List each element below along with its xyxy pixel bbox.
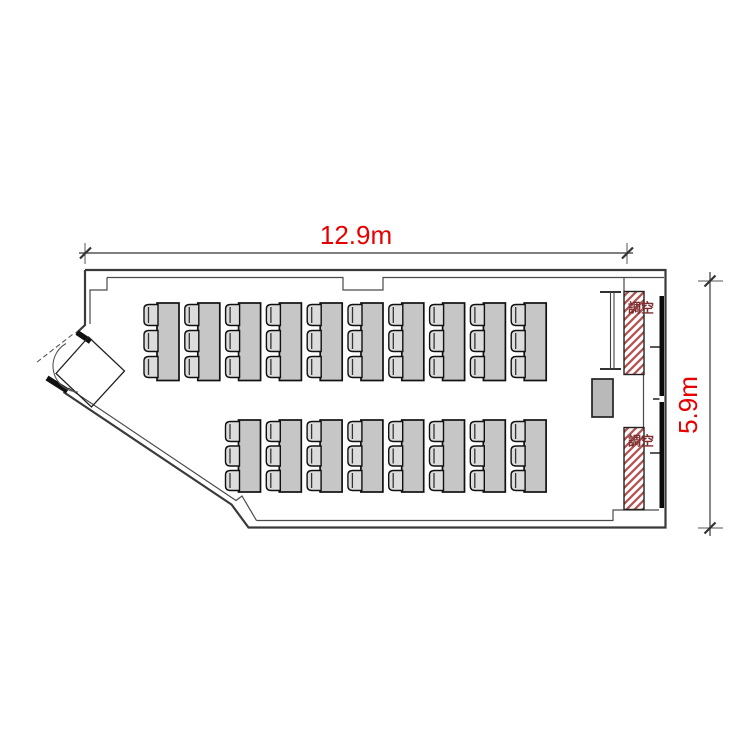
table-group	[185, 303, 220, 381]
chair	[430, 446, 444, 466]
chair	[470, 471, 484, 491]
chair	[470, 422, 484, 442]
table	[320, 420, 342, 492]
chair	[511, 422, 525, 442]
chair	[389, 471, 403, 491]
table	[524, 303, 546, 381]
projector-screen-icon	[611, 292, 615, 369]
table	[483, 303, 505, 381]
table-group	[470, 420, 505, 492]
table-group	[511, 420, 546, 492]
table	[443, 303, 465, 381]
chair	[389, 357, 403, 378]
table-group	[226, 303, 261, 381]
floor-plan-canvas: 12.9m 5.9m 空調 空調	[0, 0, 750, 750]
chair	[266, 471, 280, 491]
table	[402, 420, 424, 492]
table	[443, 420, 465, 492]
chair	[430, 422, 444, 442]
table	[524, 420, 546, 492]
chair	[389, 331, 403, 352]
table-group	[511, 303, 546, 381]
table-group	[470, 303, 505, 381]
chair	[470, 357, 484, 378]
chair	[348, 331, 362, 352]
floor-plan-drawing	[0, 0, 750, 750]
table-row	[226, 420, 547, 492]
chair	[430, 331, 444, 352]
whiteboard-top	[660, 296, 665, 396]
table	[361, 420, 383, 492]
room-inner-wall-bottom	[257, 510, 660, 521]
table-group	[307, 303, 342, 381]
table-group	[430, 303, 465, 381]
table	[483, 420, 505, 492]
chair	[430, 305, 444, 326]
chair	[348, 446, 362, 466]
chair	[144, 357, 158, 378]
dimension-label-height: 5.9m	[675, 339, 701, 471]
table	[402, 303, 424, 381]
ac-unit-label-bottom: 空調	[627, 434, 653, 506]
chair	[511, 446, 525, 466]
table-group	[266, 420, 301, 492]
chair	[430, 357, 444, 378]
chair	[307, 357, 321, 378]
chair	[307, 446, 321, 466]
chair	[430, 471, 444, 491]
chair	[226, 446, 240, 466]
room-inner-wall-top	[107, 278, 664, 291]
chair	[266, 331, 280, 352]
table-group	[266, 303, 301, 381]
table	[279, 420, 301, 492]
table-group	[348, 303, 383, 381]
chair	[470, 331, 484, 352]
chair	[307, 305, 321, 326]
chair	[511, 471, 525, 491]
chair	[185, 305, 199, 326]
table-group	[389, 303, 424, 381]
chair	[226, 471, 240, 491]
chair	[348, 422, 362, 442]
table	[157, 303, 179, 381]
table	[198, 303, 220, 381]
chair	[144, 305, 158, 326]
dimension-label-width: 12.9m	[290, 222, 422, 248]
ac-unit-label-top: 空調	[627, 301, 653, 373]
chair	[389, 305, 403, 326]
chair	[470, 305, 484, 326]
chair	[226, 422, 240, 442]
chair	[144, 331, 158, 352]
whiteboard-bottom	[660, 402, 665, 508]
chair	[348, 357, 362, 378]
chair	[226, 305, 240, 326]
table	[320, 303, 342, 381]
chair	[266, 446, 280, 466]
table-group	[226, 420, 261, 492]
chair	[389, 422, 403, 442]
chair	[185, 357, 199, 378]
table-group	[430, 420, 465, 492]
table	[239, 303, 261, 381]
chair	[348, 471, 362, 491]
chair	[307, 471, 321, 491]
chair	[511, 331, 525, 352]
chair	[266, 357, 280, 378]
table-group	[389, 420, 424, 492]
table-group	[348, 420, 383, 492]
chair	[185, 331, 199, 352]
table	[361, 303, 383, 381]
chair	[307, 422, 321, 442]
furniture-layer	[144, 303, 546, 492]
table-group	[307, 420, 342, 492]
chair	[226, 331, 240, 352]
table-row	[144, 303, 546, 381]
chair	[389, 446, 403, 466]
chair	[511, 305, 525, 326]
chair	[470, 446, 484, 466]
wall-notch-top-left	[90, 278, 107, 325]
chair	[266, 305, 280, 326]
table-group	[144, 303, 179, 381]
room-left-wall	[76, 270, 85, 334]
chair	[511, 357, 525, 378]
chair	[266, 422, 280, 442]
chair	[348, 305, 362, 326]
chair	[307, 331, 321, 352]
podium-table	[592, 379, 613, 417]
chair	[226, 357, 240, 378]
table	[239, 420, 261, 492]
door-leaf	[56, 337, 125, 407]
table	[279, 303, 301, 381]
